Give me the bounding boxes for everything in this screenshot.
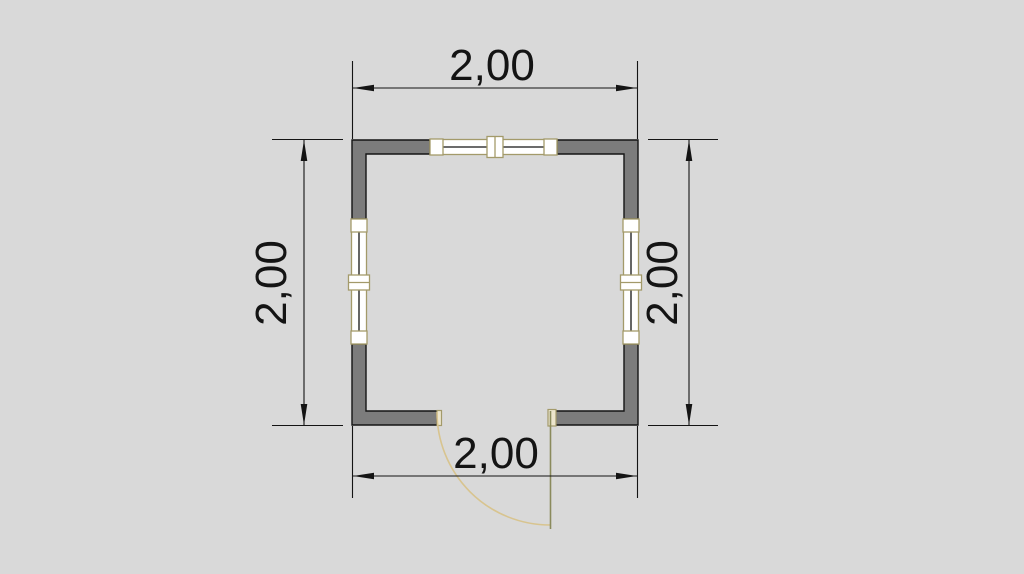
- floor-plan-canvas: 2,00 2,00 2,00 2,00: [0, 0, 1024, 574]
- wall-corner-top-right: [557, 140, 638, 219]
- window-left-end-block-bottom: [351, 331, 367, 344]
- dimension-right: 2,00: [638, 140, 718, 426]
- dimension-right-arrow-bottom: [686, 404, 693, 425]
- wall-corner-bottom-right: [549, 344, 638, 425]
- window-top-end-block-left: [430, 139, 443, 155]
- dimension-top-label: 2,00: [449, 41, 535, 90]
- dimension-right-arrow-top: [686, 140, 693, 161]
- dimension-bottom-arrow-left: [353, 473, 374, 480]
- dimension-right-label: 2,00: [638, 240, 687, 326]
- dimension-bottom-label: 2,00: [453, 429, 539, 478]
- window-left-end-block-top: [351, 219, 367, 232]
- window-top-end-block-right: [544, 139, 557, 155]
- dimension-bottom: 2,00: [353, 426, 638, 498]
- wall-corner-bottom-left: [352, 344, 437, 425]
- window-left: [349, 219, 370, 344]
- window-right-end-block-top: [623, 219, 639, 232]
- wall-corner-top-left: [352, 140, 430, 219]
- dimension-top-arrow-left: [353, 85, 374, 92]
- dimension-left-arrow-top: [301, 140, 308, 161]
- dimension-left-label: 2,00: [247, 240, 296, 326]
- dimension-bottom-arrow-right: [616, 473, 637, 480]
- floor-plan: 2,00 2,00 2,00 2,00: [0, 0, 1024, 574]
- dimension-left-arrow-bottom: [301, 404, 308, 425]
- dimension-left: 2,00: [247, 140, 343, 426]
- window-top: [430, 137, 557, 158]
- window-right-end-block-bottom: [623, 331, 639, 344]
- walls: [352, 140, 638, 425]
- door-jamb-right: [548, 410, 556, 427]
- dimension-top: 2,00: [353, 41, 638, 139]
- dimension-top-arrow-right: [616, 85, 637, 92]
